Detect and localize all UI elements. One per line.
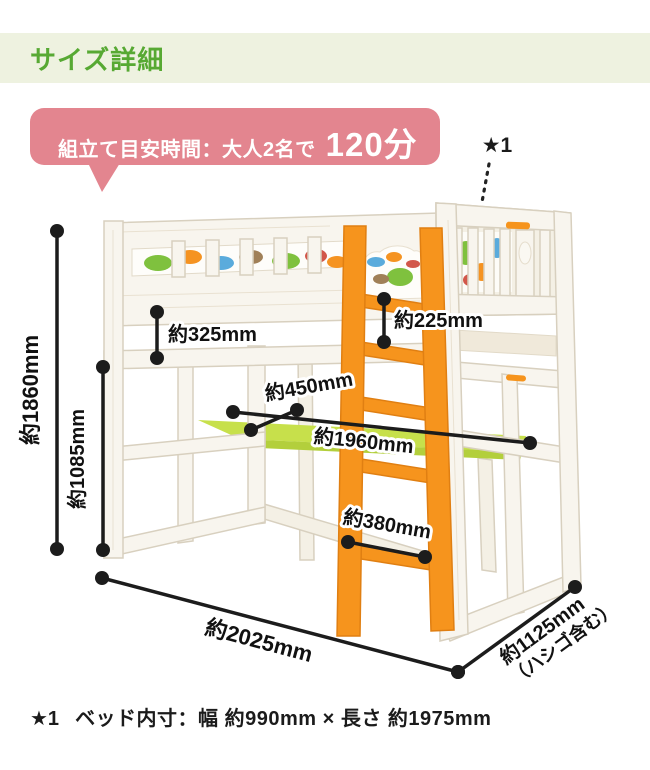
footnote-text: ベッド内寸：幅 約990mm × 長さ 約1975mm (75, 702, 491, 731)
dim-rung-gap-label: 約225mm (394, 308, 483, 332)
footnote-marker: ★1 (30, 706, 59, 731)
panel-handle-top (506, 222, 530, 230)
star-callout: ★1 (482, 134, 513, 202)
dim-under-bed-height-label: 約1085mm (65, 409, 89, 509)
dimension-under-bed-height: 約1085mm (65, 360, 110, 557)
dim-rail-gap-label: 約325mm (168, 322, 257, 346)
bed-size-diagram: 約1860mm 約1085mm 約325mm 約225mm 約450mm 約19… (0, 0, 650, 770)
dimension-total-height: 約1860mm (18, 224, 64, 556)
size-detail-section: サイズ詳細 組立て目安時間：大人2名で 120分 (0, 0, 650, 770)
dimension-total-length: 約2025mm (95, 571, 465, 679)
dim-total-length-label: 約2025mm (203, 614, 316, 667)
blanket (360, 246, 427, 300)
bed-platform (454, 330, 556, 356)
star-marker: ★1 (482, 134, 513, 157)
bed-left-wall (104, 346, 265, 558)
inner-size-footnote: ★1 ベッド内寸：幅 約990mm × 長さ 約1975mm (30, 702, 491, 731)
dim-total-height-label: 約1860mm (18, 335, 43, 445)
star-dotted-line (482, 164, 489, 202)
